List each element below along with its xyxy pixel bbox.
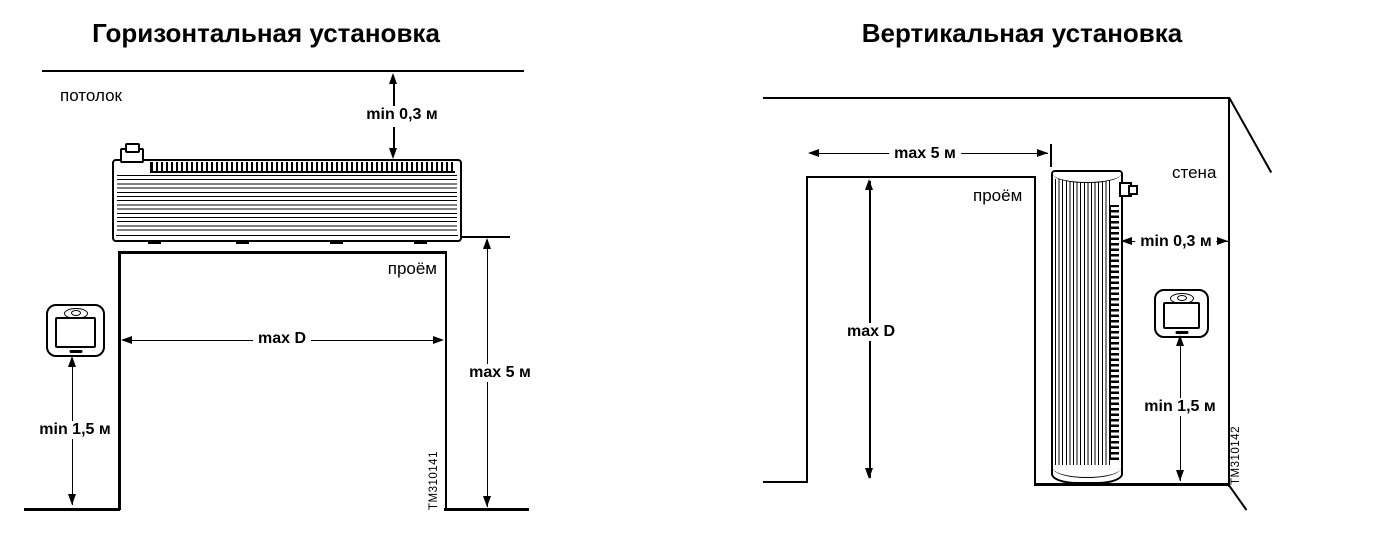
unit-foot bbox=[414, 240, 427, 244]
remote-control bbox=[46, 304, 105, 357]
opening-height-arrowhead-down bbox=[865, 468, 873, 479]
unit-louvers bbox=[117, 175, 457, 232]
opening-width-arrowhead-right bbox=[433, 336, 444, 344]
opening-right-line bbox=[1034, 176, 1036, 483]
remote-height-dimension-label: min 1,5 м bbox=[34, 421, 115, 439]
unit-foot bbox=[148, 240, 161, 244]
wall-top-line bbox=[763, 97, 1230, 99]
remote-speaker-dot bbox=[71, 310, 81, 316]
air-curtain-unit-horizontal bbox=[112, 159, 462, 242]
remote-display bbox=[1163, 302, 1200, 329]
remote-height-dimension-label: min 1,5 м bbox=[1139, 398, 1220, 416]
opening-label: проём bbox=[973, 186, 1022, 206]
max-height-arrowhead-down bbox=[483, 496, 491, 507]
ceiling-clearance-dimension-label: min 0,3 м bbox=[361, 106, 442, 124]
vertical-installation-diagram: Вертикальная установка стена проём max 5… bbox=[0, 0, 1380, 537]
air-curtain-unit-vertical bbox=[1051, 170, 1123, 484]
wall-clearance-arrowhead-left bbox=[1121, 237, 1132, 245]
unit-bottom-cap bbox=[1053, 465, 1121, 478]
remote-bottom-dash bbox=[69, 350, 82, 353]
unit-intake-grille bbox=[150, 162, 455, 173]
wall-top-corner-diagonal bbox=[1229, 97, 1272, 173]
unit-foot bbox=[236, 240, 249, 244]
remote-bottom-dash bbox=[1175, 331, 1188, 334]
opening-width-dimension-label: max 5 м bbox=[889, 145, 961, 163]
remote-control bbox=[1154, 289, 1209, 338]
cable-gland-cap bbox=[125, 143, 140, 153]
wall-clearance-arrowhead-right bbox=[1217, 237, 1228, 245]
opening-width-arrowhead-right bbox=[1037, 149, 1048, 157]
opening-height-dimension-label: max D bbox=[842, 323, 900, 341]
figure-id: TM310142 bbox=[1230, 427, 1242, 485]
opening-top-line bbox=[806, 176, 1036, 178]
wall-bottom-corner-diagonal bbox=[1228, 485, 1247, 511]
remote-display bbox=[55, 317, 96, 348]
opening-width-extension-tick bbox=[1050, 144, 1052, 167]
opening-bottom-ledge-line bbox=[763, 481, 808, 483]
wall-clearance-dimension-label: min 0,3 м bbox=[1135, 233, 1216, 251]
unit-louvers bbox=[1055, 179, 1110, 472]
cable-gland-cap bbox=[1128, 185, 1138, 195]
opening-width-arrowhead-left bbox=[808, 149, 819, 157]
remote-height-arrowhead-up bbox=[1176, 335, 1184, 346]
ceiling-clearance-arrowhead-down bbox=[389, 148, 397, 159]
unit-base-line bbox=[116, 235, 458, 237]
remote-height-arrowhead-down bbox=[1176, 470, 1184, 481]
right-diagram-title: Вертикальная установка bbox=[862, 18, 1183, 49]
opening-width-arrowhead-left bbox=[121, 336, 132, 344]
unit-intake-grille bbox=[1110, 205, 1119, 460]
remote-height-arrowhead-up bbox=[68, 356, 76, 367]
opening-left-line bbox=[806, 176, 808, 483]
opening-width-dimension-label: max D bbox=[253, 330, 311, 348]
max-height-arrowhead-up bbox=[483, 238, 491, 249]
unit-foot bbox=[330, 240, 343, 244]
installation-diagram-canvas: Горизонтальная установка потолок min 0,3… bbox=[0, 0, 1380, 537]
opening-height-arrowhead-up bbox=[865, 179, 873, 190]
floor-line bbox=[1034, 483, 1230, 486]
remote-height-arrowhead-down bbox=[68, 494, 76, 505]
max-height-dimension-label: max 5 м bbox=[464, 364, 536, 382]
remote-speaker-dot bbox=[1177, 295, 1187, 301]
wall-label: стена bbox=[1172, 163, 1216, 183]
ceiling-clearance-arrowhead-up bbox=[389, 73, 397, 84]
